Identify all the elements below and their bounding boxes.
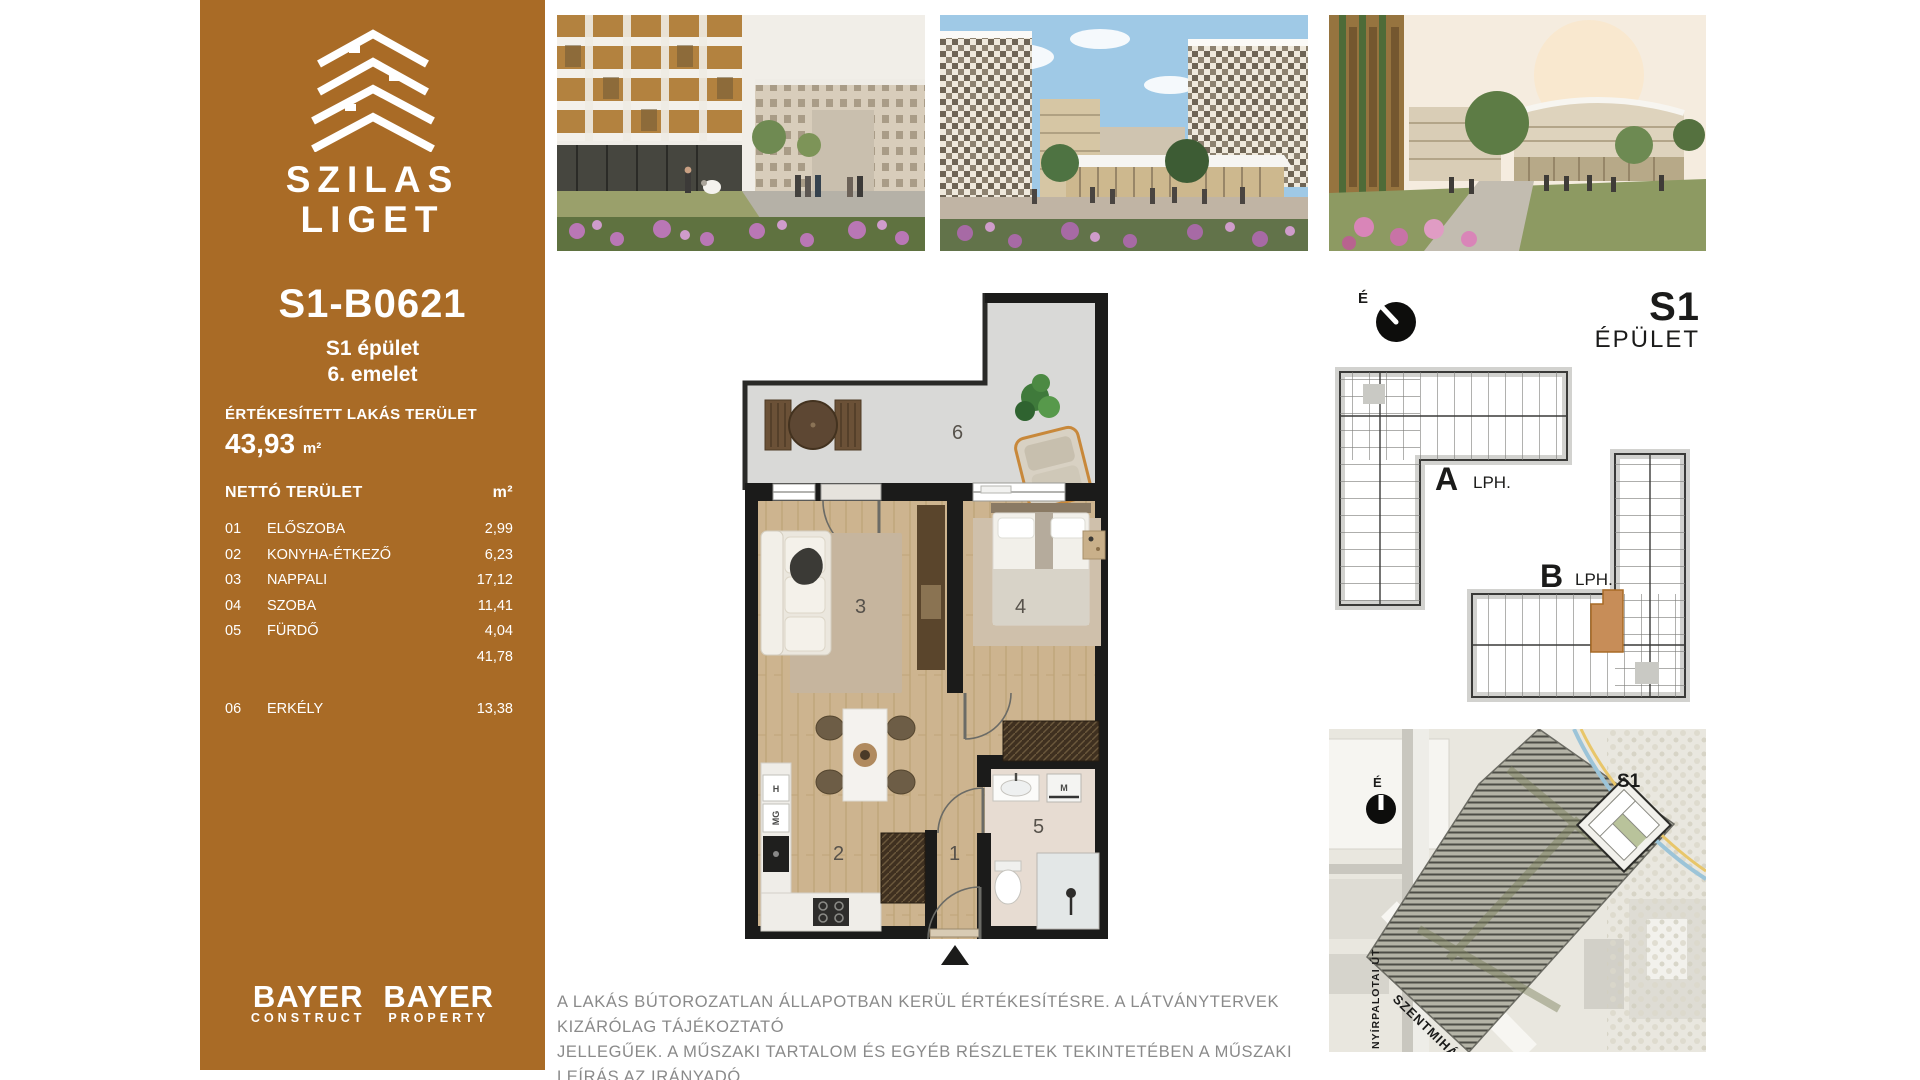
room-name: FÜRDŐ [267, 623, 485, 639]
bedroom-wardrobe [1003, 721, 1099, 761]
render-photo-plaza [940, 15, 1308, 251]
sold-area-value: 43,93 m² [225, 428, 321, 460]
room-no: 06 [225, 701, 267, 717]
bed [991, 503, 1091, 625]
living-window [773, 484, 815, 500]
outdoor-dining-set [765, 400, 861, 450]
net-area-header: NETTÓ TERÜLET m² [225, 484, 513, 502]
brand-line-2: LIGET [200, 200, 545, 240]
room-number-balcony: 6 [952, 422, 963, 444]
keyplan-compass: É [1358, 292, 1428, 347]
bayer-property-top: BAYER [383, 983, 494, 1011]
room-area: 17,12 [477, 572, 513, 588]
table-row: 02 KONYHA-ÉTKEZŐ 6,23 [225, 547, 513, 573]
room-area: 11,41 [478, 598, 513, 614]
room-no: 03 [225, 572, 267, 588]
room-number-bedroom: 4 [1015, 596, 1026, 618]
tv-cabinet-shelf [921, 585, 941, 619]
table-row: 01 ELŐSZOBA 2,99 [225, 521, 513, 547]
net-area-label: NETTÓ TERÜLET [225, 484, 363, 502]
room-no: 01 [225, 521, 267, 537]
render-photo-courtyard [557, 15, 925, 251]
kitchen-label-h: H [773, 784, 780, 794]
sidebar: SZILAS LIGET S1-B0621 S1 épület 6. emele… [200, 0, 545, 1070]
site-map: S1 É SZENTMIHÁLYI ÚT NYÍRPALOTAI ÚT [1329, 729, 1706, 1052]
sold-area-number: 43,93 [225, 428, 295, 459]
net-subtotal: 41,78 [477, 649, 513, 665]
hall-wardrobe [881, 833, 925, 903]
room-area: 13,38 [477, 701, 513, 717]
net-area-unit: m² [493, 484, 513, 502]
north-label: É [1373, 775, 1382, 790]
building-name: S1 épület [200, 336, 545, 362]
north-label: É [1358, 290, 1368, 307]
room-name: NAPPALI [267, 572, 477, 588]
render-photo-park [1329, 15, 1706, 251]
room-name: ELŐSZOBA [267, 521, 485, 537]
room-number-hall: 1 [949, 843, 960, 865]
disclaimer: A LAKÁS BÚTOROZATLAN ÁLLAPOTBAN KERÜL ÉR… [557, 990, 1337, 1080]
table-row: 03 NAPPALI 17,12 [225, 572, 513, 598]
room-number-living: 3 [855, 596, 866, 618]
table-row: 05 FÜRDŐ 4,04 [225, 623, 513, 649]
washer-label-m: M [1060, 783, 1068, 793]
building-title: S1 ÉPÜLET [1470, 288, 1700, 354]
brand-line-1: SZILAS [200, 160, 545, 200]
table-spacer [225, 675, 513, 701]
sold-area-unit: m² [303, 440, 321, 457]
room-name: KONYHA-ÉTKEZŐ [267, 547, 485, 563]
table-row-balcony: 06 ERKÉLY 13,38 [225, 701, 513, 727]
compass-icon [1358, 292, 1428, 347]
room-area: 4,04 [485, 623, 513, 639]
stair-b-label: B [1540, 558, 1563, 594]
sitemap-s1-label: S1 [1617, 771, 1641, 792]
washing-machine: M [1047, 774, 1081, 802]
table-row: 04 SZOBA 11,41 [225, 598, 513, 624]
room-area-table: 01 ELŐSZOBA 2,99 02 KONYHA-ÉTKEZŐ 6,23 0… [225, 521, 513, 726]
room-name: ERKÉLY [267, 701, 477, 717]
building-floor: S1 épület 6. emelet [200, 336, 545, 388]
stair-a-suffix: LPH. [1473, 473, 1511, 492]
unit-id: S1-B0621 [200, 282, 545, 327]
bayer-property-bottom: PROPERTY [383, 1011, 494, 1025]
keyplan-drawing: A LPH. B LPH. [1335, 362, 1705, 707]
sold-area-label: ÉRTÉKESÍTETT LAKÁS TERÜLET [225, 406, 525, 423]
floor-name: 6. emelet [200, 362, 545, 388]
stair-a-label: A [1435, 461, 1458, 497]
washbasin [993, 773, 1039, 801]
brand-title: SZILAS LIGET [200, 160, 545, 240]
room-name: SZOBA [267, 598, 478, 614]
stair-b-suffix: LPH. [1575, 570, 1613, 589]
shower [1037, 853, 1099, 929]
disclaimer-line-1: A LAKÁS BÚTOROZATLAN ÁLLAPOTBAN KERÜL ÉR… [557, 990, 1337, 1040]
building-code: S1 [1470, 288, 1700, 326]
room-number-kitchen: 2 [833, 843, 844, 865]
room-no: 04 [225, 598, 267, 614]
floorplan: H MG [735, 285, 1110, 975]
kitchen-label-mg: MG [771, 811, 781, 826]
room-number-bath: 5 [1033, 816, 1044, 838]
bedroom-window [973, 483, 1065, 501]
disclaimer-line-2: JELLEGŰEK. A MŰSZAKI TARTALOM ÉS EGYÉB R… [557, 1040, 1337, 1080]
datasheet-page: SZILAS LIGET S1-B0621 S1 épület 6. emele… [0, 0, 1920, 1080]
room-area: 2,99 [485, 521, 513, 537]
toilet [995, 861, 1021, 904]
bayer-property-logo: BAYER PROPERTY [383, 983, 494, 1025]
bayer-construct-logo: BAYER CONSTRUCT [251, 983, 365, 1025]
bayer-construct-bottom: CONSTRUCT [251, 1011, 365, 1025]
room-area: 6,23 [485, 547, 513, 563]
szilas-liget-logo-icon [305, 22, 440, 152]
bayer-construct-top: BAYER [251, 983, 365, 1011]
sofa [761, 531, 831, 655]
street-label-side: NYÍRPALOTAI ÚT [1369, 948, 1382, 1049]
nightstand [1083, 531, 1105, 559]
entrance-arrow-icon [941, 945, 969, 965]
room-no: 05 [225, 623, 267, 639]
building-word: ÉPÜLET [1470, 326, 1700, 354]
room-no: 02 [225, 547, 267, 563]
net-subtotal-row: 41,78 [225, 649, 513, 675]
developer-logos: BAYER CONSTRUCT BAYER PROPERTY [200, 983, 545, 1025]
